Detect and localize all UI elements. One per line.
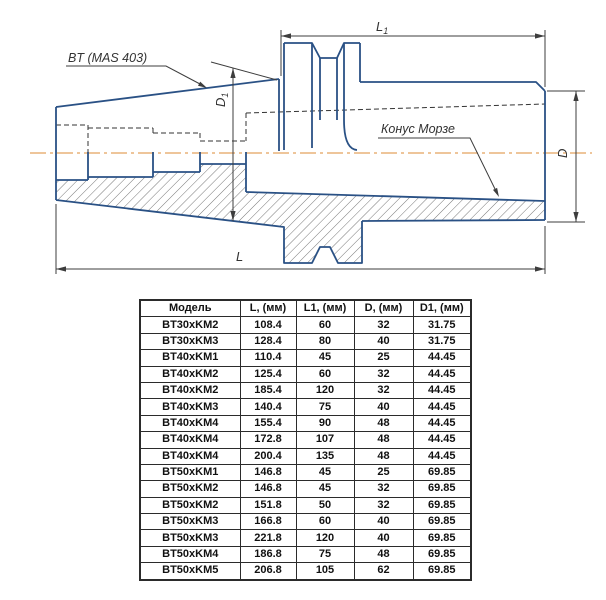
leader-morse-taper [378, 138, 499, 197]
table-cell: 32 [354, 481, 413, 497]
table-cell: 44.45 [413, 415, 471, 431]
table-cell: 135 [296, 448, 354, 464]
table-cell: 200.4 [240, 448, 296, 464]
table-cell: BT40xKM3 [140, 399, 240, 415]
table-cell: 40 [354, 333, 413, 349]
table-cell: 31.75 [413, 317, 471, 333]
table-cell: 146.8 [240, 481, 296, 497]
table-cell: 69.85 [413, 497, 471, 513]
table-cell: 105 [296, 563, 354, 580]
table-cell: BT50xKM4 [140, 546, 240, 562]
table-row: BT40xKM2185.41203244.45 [140, 382, 471, 398]
table-row: BT50xKM4186.8754869.85 [140, 546, 471, 562]
table-cell: 32 [354, 382, 413, 398]
table-row: BT30xKM3128.4804031.75 [140, 333, 471, 349]
table-row: BT40xKM4155.4904844.45 [140, 415, 471, 431]
table-cell: 151.8 [240, 497, 296, 513]
table-cell: 40 [354, 399, 413, 415]
dimension-d1-label: D1 [213, 93, 230, 107]
table-row: BT50xKM1146.8452569.85 [140, 464, 471, 480]
leader-shank-standard [66, 66, 207, 88]
dimension-l1-label: L1 [376, 19, 388, 36]
table-cell: 155.4 [240, 415, 296, 431]
table-cell: 221.8 [240, 530, 296, 546]
table-row: BT40xKM4172.81074844.45 [140, 432, 471, 448]
table-cell: 185.4 [240, 382, 296, 398]
table-cell: 108.4 [240, 317, 296, 333]
table-cell: 25 [354, 464, 413, 480]
table-cell: BT50xKM3 [140, 530, 240, 546]
table-cell: 44.45 [413, 432, 471, 448]
table-row: BT50xKM5206.81056269.85 [140, 563, 471, 580]
table-cell: 50 [296, 497, 354, 513]
table-cell: 32 [354, 317, 413, 333]
toolholder-technical-drawing: L1 D1 D L BT (MAS 403) [0, 0, 606, 297]
dimension-l-label: L [236, 249, 243, 264]
table-cell: 48 [354, 448, 413, 464]
table-cell: 107 [296, 432, 354, 448]
table-cell: 32 [354, 366, 413, 382]
table-cell: 60 [296, 514, 354, 530]
table-cell: 44.45 [413, 382, 471, 398]
table-cell: BT40xKM4 [140, 432, 240, 448]
table-cell: 69.85 [413, 481, 471, 497]
table-cell: BT40xKM1 [140, 350, 240, 366]
column-header: L, (мм) [240, 300, 296, 317]
table-cell: 206.8 [240, 563, 296, 580]
size-table: МодельL, (мм)L1, (мм)D, (мм)D1, (мм) BT3… [139, 299, 472, 581]
table-cell: 120 [296, 530, 354, 546]
morse-taper-label: Конус Морзе [381, 122, 455, 136]
table-cell: BT30xKM3 [140, 333, 240, 349]
table-cell: 75 [296, 399, 354, 415]
table-cell: 110.4 [240, 350, 296, 366]
table-cell: 62 [354, 563, 413, 580]
table-cell: 140.4 [240, 399, 296, 415]
table-cell: BT30xKM2 [140, 317, 240, 333]
table-cell: 166.8 [240, 514, 296, 530]
table-cell: BT50xKM3 [140, 514, 240, 530]
table-cell: 120 [296, 382, 354, 398]
table-row: BT50xKM3166.8604069.85 [140, 514, 471, 530]
dimension-d-label: D [555, 149, 570, 158]
table-cell: 80 [296, 333, 354, 349]
table-cell: 60 [296, 317, 354, 333]
table-cell: 90 [296, 415, 354, 431]
table-cell: 69.85 [413, 530, 471, 546]
size-table-body: BT30xKM2108.4603231.75BT30xKM3128.480403… [140, 317, 471, 580]
table-cell: BT40xKM2 [140, 382, 240, 398]
table-cell: 32 [354, 497, 413, 513]
column-header: L1, (мм) [296, 300, 354, 317]
table-cell: 48 [354, 546, 413, 562]
table-cell: 25 [354, 350, 413, 366]
table-cell: 44.45 [413, 350, 471, 366]
header-row: МодельL, (мм)L1, (мм)D, (мм)D1, (мм) [140, 300, 471, 317]
table-cell: BT50xKM2 [140, 497, 240, 513]
table-cell: BT40xKM4 [140, 448, 240, 464]
table-cell: 48 [354, 415, 413, 431]
shank-standard-label: BT (MAS 403) [68, 51, 147, 65]
table-row: BT40xKM2125.4603244.45 [140, 366, 471, 382]
size-table-head: МодельL, (мм)L1, (мм)D, (мм)D1, (мм) [140, 300, 471, 317]
table-cell: 172.8 [240, 432, 296, 448]
table-cell: 44.45 [413, 366, 471, 382]
table-cell: BT40xKM4 [140, 415, 240, 431]
table-cell: BT40xKM2 [140, 366, 240, 382]
table-cell: 60 [296, 366, 354, 382]
table-cell: BT50xKM1 [140, 464, 240, 480]
table-row: BT40xKM4200.41354844.45 [140, 448, 471, 464]
table-cell: 69.85 [413, 563, 471, 580]
table-cell: 40 [354, 514, 413, 530]
table-cell: 146.8 [240, 464, 296, 480]
table-row: BT50xKM2146.8453269.85 [140, 481, 471, 497]
table-cell: 48 [354, 432, 413, 448]
table-cell: 40 [354, 530, 413, 546]
table-cell: 45 [296, 350, 354, 366]
table-cell: 75 [296, 546, 354, 562]
section-hatch-area [56, 164, 545, 263]
column-header: Модель [140, 300, 240, 317]
column-header: D1, (мм) [413, 300, 471, 317]
table-cell: 69.85 [413, 464, 471, 480]
table-cell: 31.75 [413, 333, 471, 349]
hidden-bore-lines [56, 104, 545, 152]
table-cell: 186.8 [240, 546, 296, 562]
table-cell: 45 [296, 481, 354, 497]
table-cell: 45 [296, 464, 354, 480]
table-cell: 44.45 [413, 448, 471, 464]
table-cell: 128.4 [240, 333, 296, 349]
table-row: BT40xKM1110.4452544.45 [140, 350, 471, 366]
column-header: D, (мм) [354, 300, 413, 317]
table-cell: 125.4 [240, 366, 296, 382]
table-row: BT50xKM3221.81204069.85 [140, 530, 471, 546]
table-cell: BT50xKM2 [140, 481, 240, 497]
table-cell: 69.85 [413, 546, 471, 562]
table-cell: 69.85 [413, 514, 471, 530]
table-row: BT30xKM2108.4603231.75 [140, 317, 471, 333]
table-cell: 44.45 [413, 399, 471, 415]
table-row: BT40xKM3140.4754044.45 [140, 399, 471, 415]
table-row: BT50xKM2151.8503269.85 [140, 497, 471, 513]
table-cell: BT50xKM5 [140, 563, 240, 580]
page: L1 D1 D L BT (MAS 403) [0, 0, 606, 600]
